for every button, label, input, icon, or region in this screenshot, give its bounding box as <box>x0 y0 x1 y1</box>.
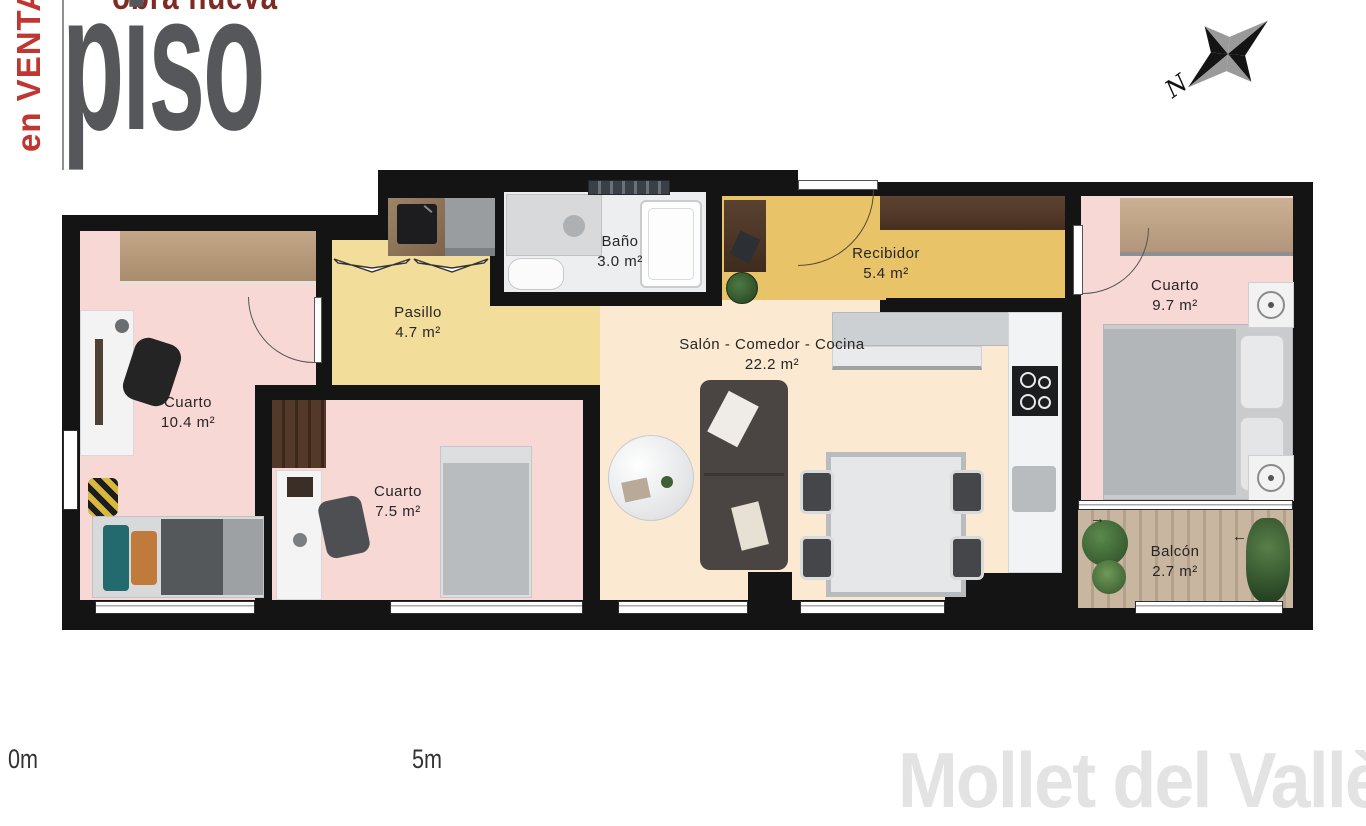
watermark-location: Mollet del Vallès <box>898 735 1366 826</box>
bed-pillow <box>1240 335 1284 409</box>
desk-item <box>115 319 129 333</box>
towel-radiator <box>588 180 670 195</box>
wall <box>886 298 1071 312</box>
logo-en-venta-text: en VENTA <box>10 0 48 152</box>
room-area: 22.2 m² <box>679 355 864 375</box>
desk-tall <box>276 470 322 600</box>
room-label-cuarto-left: Cuarto 10.4 m² <box>161 393 215 432</box>
wall <box>748 572 792 600</box>
logo-obra-nueva: obra nueva <box>112 0 278 18</box>
blanket <box>443 463 529 595</box>
window <box>63 430 78 510</box>
wall <box>706 178 722 306</box>
room-area: 2.7 m² <box>1151 562 1200 582</box>
compass-rose-icon <box>1152 0 1304 130</box>
room-label-cuarto-right: Cuarto 9.7 m² <box>1151 276 1199 315</box>
kitchen-sink <box>1012 466 1056 512</box>
bed <box>92 516 264 598</box>
room-name: Baño <box>597 232 643 252</box>
room-name: Pasillo <box>394 303 442 323</box>
blanket-light <box>223 519 263 595</box>
pillow-teal <box>103 525 129 591</box>
sofa-pillow <box>707 391 759 448</box>
kitchen-column <box>1008 312 1062 573</box>
room-label-cuarto-mid: Cuarto 7.5 m² <box>374 482 422 521</box>
balcony-plant-icon <box>1082 520 1128 566</box>
bedside-lamp-icon <box>1248 282 1294 328</box>
laundry-sink <box>397 204 437 244</box>
room-pasillo-ext <box>490 306 600 386</box>
cooktop <box>1012 366 1058 416</box>
entry-door-leaf <box>798 180 878 190</box>
dining-chair <box>950 536 984 580</box>
room-area: 4.7 m² <box>394 323 442 343</box>
wall <box>1065 182 1081 227</box>
room-area: 10.4 m² <box>161 413 215 433</box>
wardrobe <box>120 231 316 285</box>
bedside-lamp-icon <box>1248 455 1294 501</box>
logo-en-venta: en VENTA <box>10 0 52 156</box>
dining-chair <box>800 536 834 580</box>
counter-shelf <box>445 248 495 256</box>
logo-piso: piso <box>62 0 263 160</box>
room-name: Cuarto <box>1151 276 1199 296</box>
monitor <box>95 339 103 425</box>
room-area: 3.0 m² <box>597 252 643 272</box>
balcony-entry-arrow: → <box>1090 510 1105 527</box>
bathtub-inner <box>648 208 694 280</box>
faucet-icon <box>424 205 433 213</box>
dining-chair <box>800 470 834 514</box>
room-name: Balcón <box>1151 542 1200 562</box>
logo-divider <box>62 0 64 170</box>
burner <box>1020 394 1036 410</box>
room-area: 7.5 m² <box>374 502 422 522</box>
scale-start-label: 0m <box>8 744 38 775</box>
blanket-dark <box>161 519 223 595</box>
bed-blanket <box>1104 329 1236 495</box>
cuarto-right-door-leaf <box>1073 225 1083 295</box>
entry-console <box>724 200 766 272</box>
round-coffee-table <box>608 435 694 521</box>
pinboard <box>287 477 313 497</box>
cuarto-left-door-leaf <box>314 297 322 363</box>
wall <box>583 385 600 600</box>
hall-console-wood <box>880 196 1065 230</box>
bathtub <box>640 200 702 288</box>
room-label-pasillo: Pasillo 4.7 m² <box>394 303 442 342</box>
table-plant-icon <box>661 476 673 488</box>
room-area: 5.4 m² <box>852 264 920 284</box>
dining-table <box>826 452 966 597</box>
room-name: Cuarto <box>161 393 215 413</box>
window <box>1135 601 1283 614</box>
counter-concrete <box>445 198 495 248</box>
window <box>800 601 945 614</box>
shower <box>506 194 602 256</box>
room-name: Salón - Comedor - Cocina <box>679 335 864 355</box>
magazine <box>621 478 651 503</box>
bed-vertical <box>440 446 532 598</box>
room-name: Recibidor <box>852 244 920 264</box>
burner <box>1038 396 1051 409</box>
pillow-orange <box>131 531 157 585</box>
window <box>95 601 255 614</box>
console-pillow <box>730 231 761 264</box>
room-label-recibidor: Recibidor 5.4 m² <box>852 244 920 283</box>
room-name: Cuarto <box>374 482 422 502</box>
shower-drain-icon <box>563 215 585 237</box>
balcony-plant-icon <box>1092 560 1126 594</box>
window <box>390 601 583 614</box>
burner <box>1038 376 1051 389</box>
entry-plant-icon <box>726 272 758 304</box>
wall <box>490 292 722 306</box>
desk-lamp-icon <box>293 533 307 547</box>
dining-chair <box>950 470 984 514</box>
sofa <box>700 380 788 570</box>
wall <box>255 385 600 400</box>
wardrobe-dark <box>272 400 326 468</box>
room-label-salon: Salón - Comedor - Cocina 22.2 m² <box>679 335 864 374</box>
sofa-pillow <box>731 501 769 550</box>
balcony-access-arrow: ← <box>1232 528 1247 545</box>
room-label-balcon: Balcón 2.7 m² <box>1151 542 1200 581</box>
wall <box>316 215 332 297</box>
sofa-seam <box>704 473 784 476</box>
balcony-plant-icon <box>1246 518 1290 602</box>
folding-doors-icon <box>332 256 490 276</box>
wall <box>1062 310 1078 510</box>
balcony-door-window <box>1078 500 1293 510</box>
burner <box>1020 372 1036 388</box>
room-area: 9.7 m² <box>1151 296 1199 316</box>
window <box>618 601 748 614</box>
scale-end-label: 5m <box>412 744 442 775</box>
room-label-bano: Baño 3.0 m² <box>597 232 643 271</box>
striped-pouf <box>88 478 118 516</box>
floor-plan-page: { "logo": { "obra": "obra nueva", "piso"… <box>0 0 1366 768</box>
toilet <box>508 258 564 290</box>
